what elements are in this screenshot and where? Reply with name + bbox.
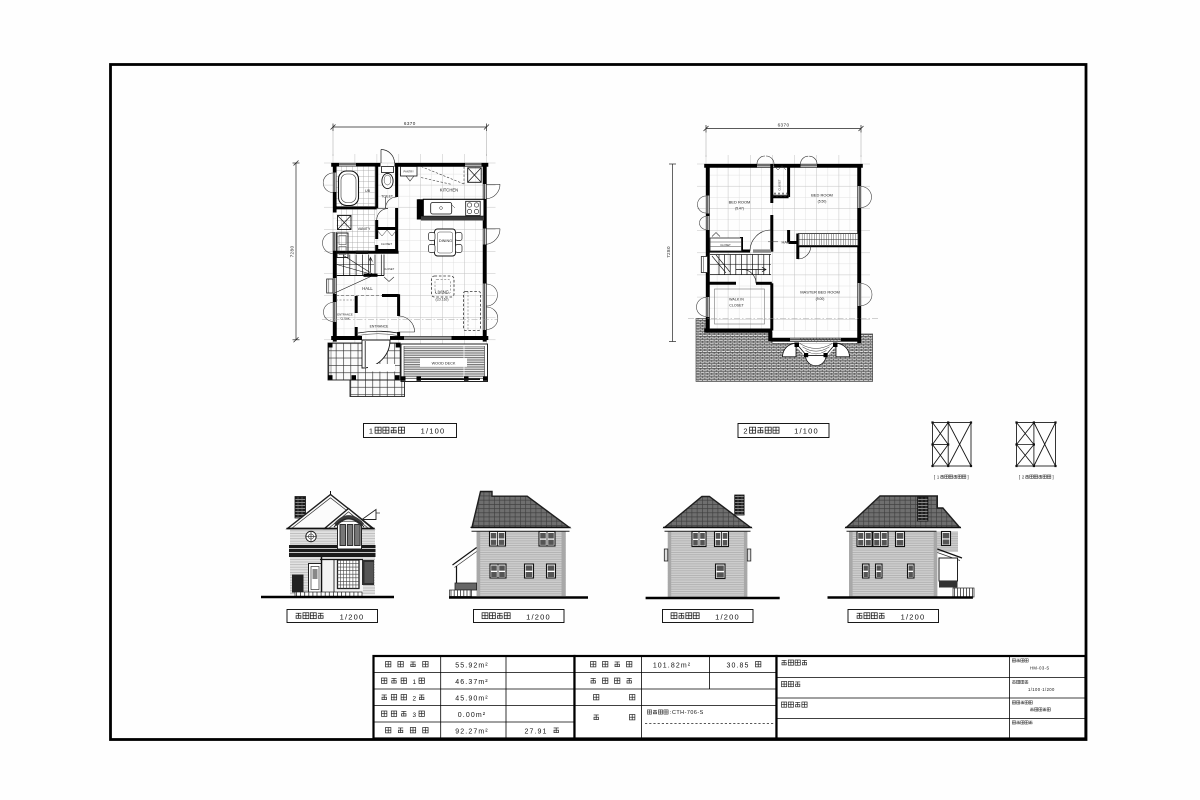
- svg-text:7280: 7280: [290, 246, 295, 258]
- svg-text:ENTRANCE: ENTRANCE: [370, 325, 389, 329]
- svg-text:27.91: 27.91: [524, 729, 547, 736]
- svg-text:0.00m²: 0.00m²: [458, 712, 486, 719]
- svg-text:CLOSET: CLOSET: [384, 267, 395, 271]
- svg-text:WALK IN: WALK IN: [729, 298, 744, 302]
- svg-text:]: ]: [1052, 475, 1053, 480]
- svg-text:]: ]: [967, 475, 968, 480]
- svg-text:55.92m²: 55.92m²: [455, 663, 488, 670]
- svg-text:CLOAK: CLOAK: [340, 317, 350, 321]
- svg-text:LIVING: LIVING: [435, 290, 449, 295]
- svg-text:(5.47): (5.47): [735, 207, 744, 211]
- svg-text:1: 1: [369, 427, 373, 436]
- svg-text:UB: UB: [365, 189, 371, 193]
- svg-text:6370: 6370: [404, 121, 416, 126]
- svg-text:HM-03-S: HM-03-S: [1030, 666, 1050, 671]
- svg-text:HALL: HALL: [362, 286, 373, 291]
- svg-text:CLOSET: CLOSET: [778, 179, 782, 190]
- svg-text:PANTRY: PANTRY: [404, 169, 415, 173]
- svg-text:92.27m²: 92.27m²: [455, 729, 488, 736]
- svg-text:DINING: DINING: [439, 239, 452, 243]
- svg-text:2: 2: [743, 427, 747, 436]
- svg-text:1/200: 1/200: [901, 613, 926, 622]
- svg-text:VANITY: VANITY: [358, 227, 371, 231]
- svg-text::CTH-706-S: :CTH-706-S: [670, 710, 704, 716]
- svg-text:(9.00): (9.00): [816, 297, 825, 301]
- svg-text:MASTER BED ROOM: MASTER BED ROOM: [800, 290, 840, 295]
- svg-text:1/100: 1/100: [794, 427, 819, 436]
- svg-text:1/200: 1/200: [340, 613, 365, 622]
- svg-text:2: 2: [413, 696, 417, 703]
- svg-text:BED ROOM: BED ROOM: [729, 200, 751, 205]
- svg-text:3: 3: [413, 712, 417, 719]
- svg-text:45.90m²: 45.90m²: [455, 696, 488, 703]
- svg-text:BED ROOM: BED ROOM: [811, 193, 833, 198]
- svg-text:KITCHEN: KITCHEN: [440, 188, 458, 193]
- svg-text:CLOSET: CLOSET: [720, 243, 731, 247]
- svg-text:7280: 7280: [666, 246, 671, 258]
- svg-text:HALL: HALL: [781, 240, 792, 245]
- svg-text:CLOSET: CLOSET: [381, 242, 392, 246]
- svg-text:1/100: 1/100: [421, 427, 446, 436]
- svg-text:CLOSET: CLOSET: [729, 304, 744, 308]
- svg-text:WOOD DECK: WOOD DECK: [432, 362, 456, 366]
- svg-text:1: 1: [413, 679, 417, 686]
- svg-text:30.85: 30.85: [726, 663, 749, 670]
- svg-text:1/200: 1/200: [526, 613, 551, 622]
- svg-text:TOILET: TOILET: [381, 195, 393, 199]
- svg-text:(5.50): (5.50): [818, 200, 827, 204]
- svg-text:101.82m²: 101.82m²: [653, 663, 691, 670]
- svg-text:(LD.16J): (LD.16J): [435, 298, 448, 302]
- svg-text:1/100·1/200: 1/100·1/200: [1028, 687, 1055, 692]
- svg-text:6370: 6370: [778, 123, 790, 128]
- svg-text:1/200: 1/200: [715, 613, 740, 622]
- svg-text:46.37m²: 46.37m²: [455, 679, 488, 686]
